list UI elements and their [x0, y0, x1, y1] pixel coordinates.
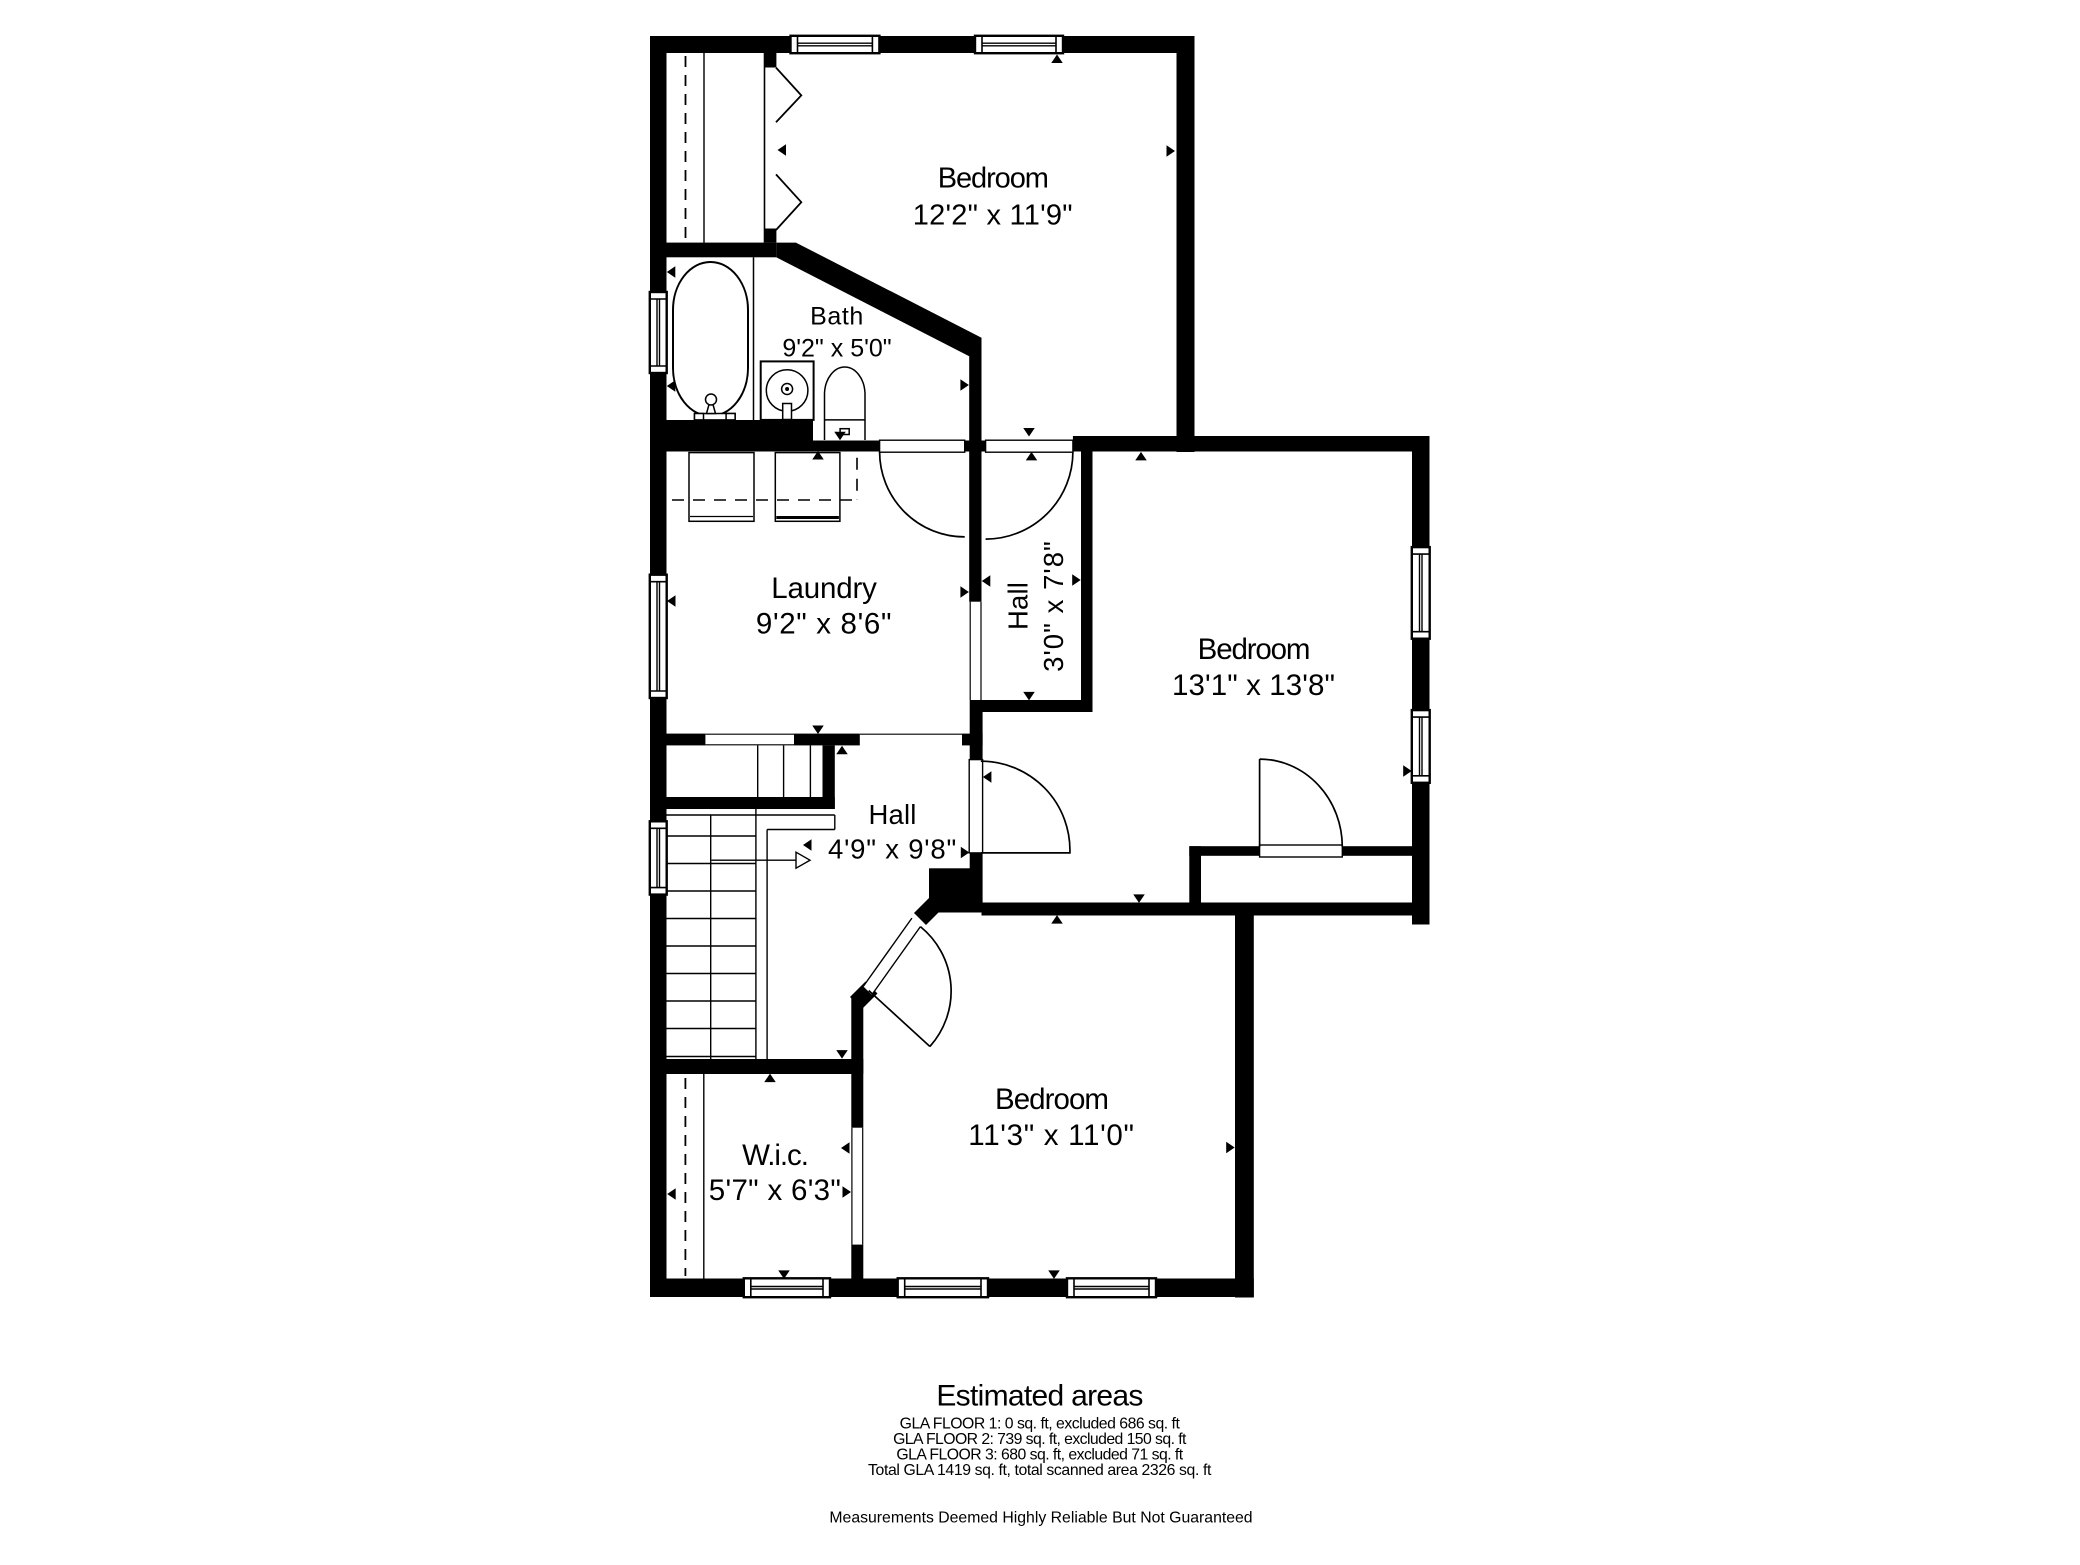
svg-text:W.i.c.: W.i.c.	[742, 1139, 808, 1172]
svg-text:Bath: Bath	[810, 303, 864, 331]
svg-text:5'7" x 6'3": 5'7" x 6'3"	[709, 1174, 841, 1207]
svg-text:11'3" x 11'0": 11'3" x 11'0"	[968, 1119, 1134, 1152]
svg-text:3'0" x 7'8": 3'0" x 7'8"	[1038, 540, 1069, 672]
svg-text:9'2" x 5'0": 9'2" x 5'0"	[782, 335, 891, 363]
svg-text:Bedroom: Bedroom	[1198, 633, 1310, 666]
svg-text:GLA FLOOR 1: 0 sq. ft, exclude: GLA FLOOR 1: 0 sq. ft, excluded 686 sq. …	[900, 1415, 1181, 1432]
svg-text:Laundry: Laundry	[771, 572, 877, 605]
svg-text:4'9" x 9'8": 4'9" x 9'8"	[828, 833, 957, 864]
svg-text:GLA FLOOR 3: 680 sq. ft, exclu: GLA FLOOR 3: 680 sq. ft, excluded 71 sq.…	[896, 1447, 1183, 1464]
svg-text:Total GLA 1419 sq. ft, total s: Total GLA 1419 sq. ft, total scanned are…	[868, 1462, 1212, 1479]
svg-text:Hall: Hall	[868, 799, 916, 830]
svg-text:9'2" x 8'6": 9'2" x 8'6"	[756, 608, 892, 641]
svg-text:12'2" x 11'9": 12'2" x 11'9"	[913, 200, 1073, 232]
svg-text:Measurements Deemed Highly Rel: Measurements Deemed Highly Reliable But …	[829, 1510, 1252, 1527]
svg-text:Estimated areas: Estimated areas	[936, 1379, 1142, 1412]
svg-text:13'1" x 13'8": 13'1" x 13'8"	[1172, 669, 1335, 702]
svg-text:Hall: Hall	[1002, 582, 1033, 630]
svg-text:Bedroom: Bedroom	[995, 1083, 1108, 1116]
svg-text:GLA FLOOR 2: 739 sq. ft, exclu: GLA FLOOR 2: 739 sq. ft, excluded 150 sq…	[893, 1431, 1187, 1448]
svg-text:Bedroom: Bedroom	[938, 163, 1048, 195]
